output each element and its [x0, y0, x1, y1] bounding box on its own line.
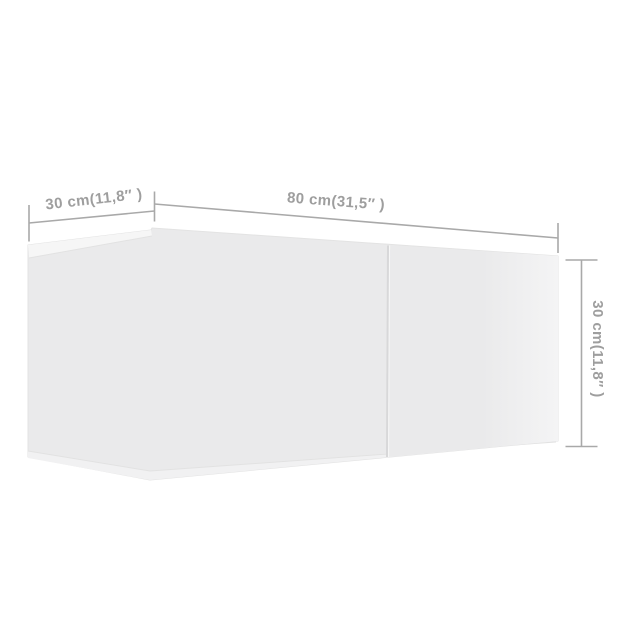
height-dimension-label: 30 cm(11,8″ ) [588, 284, 606, 414]
cabinet-dimension-drawing [0, 0, 640, 640]
product-diagram: 30 cm(11,8″ ) 80 cm(31,5″ ) 30 cm(11,8″ … [0, 0, 640, 640]
door-divider-line [387, 246, 388, 458]
cabinet-right-door [388, 245, 558, 457]
